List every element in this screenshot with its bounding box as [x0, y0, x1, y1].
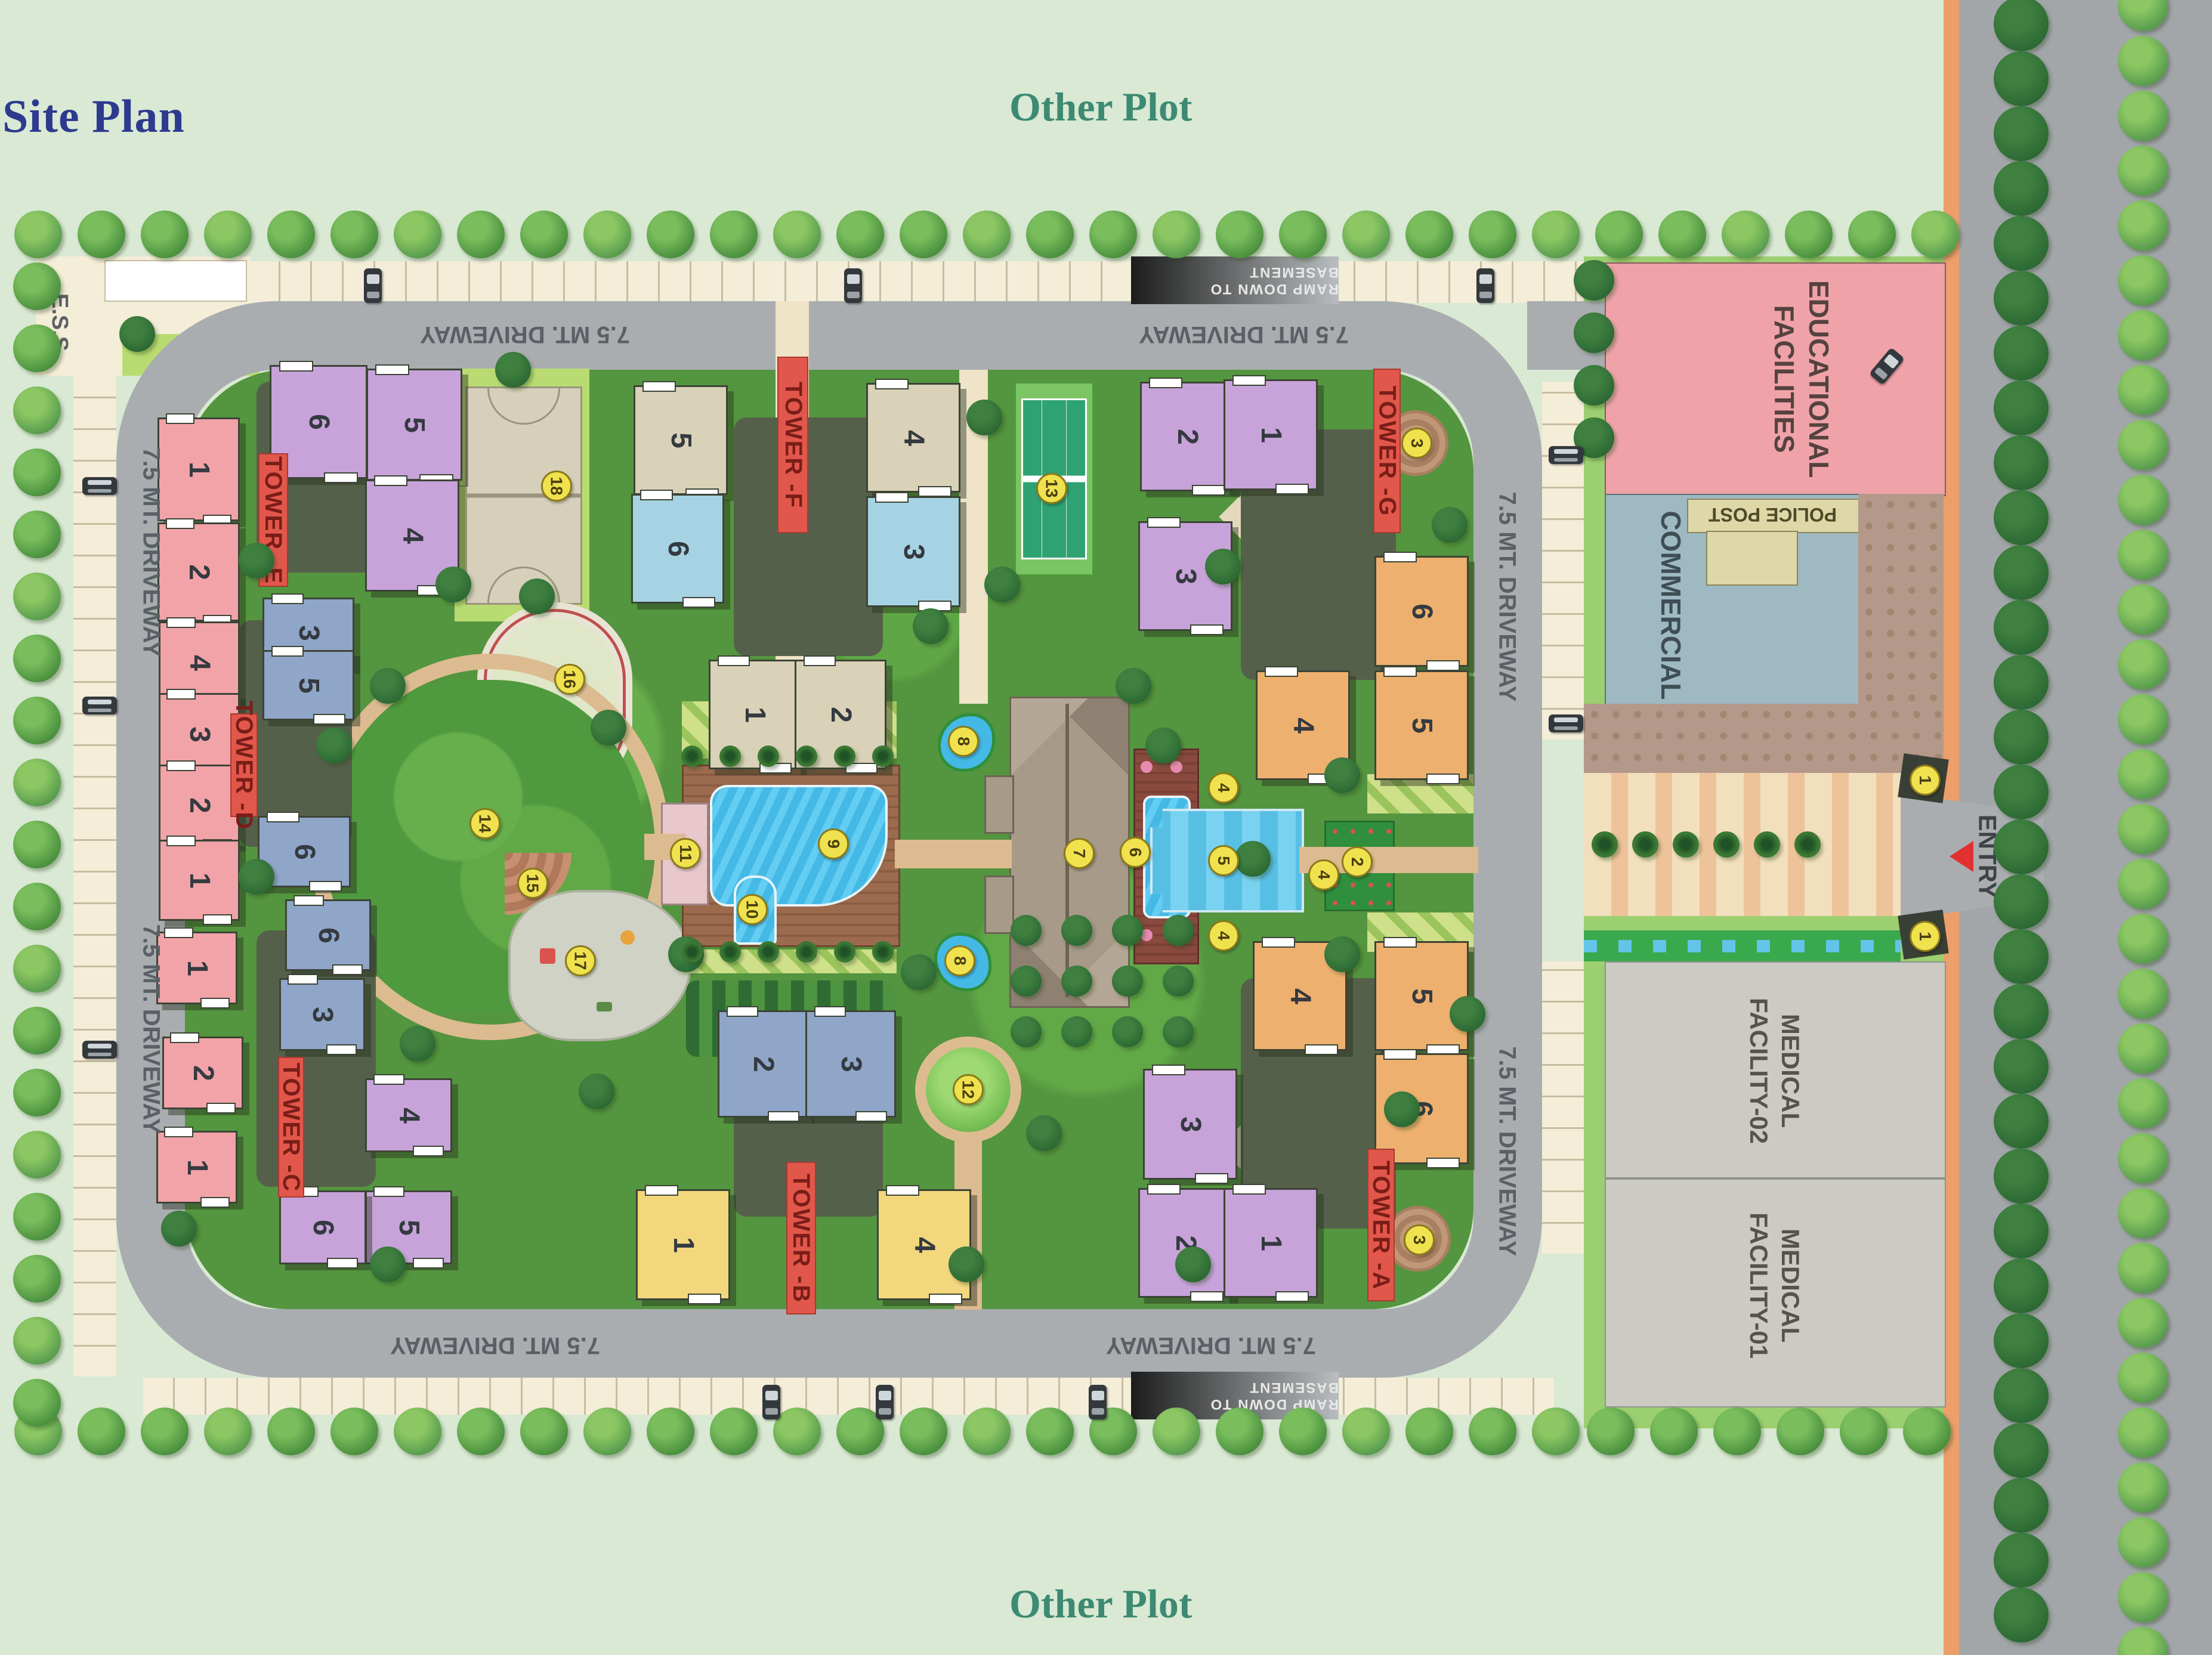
tree — [495, 352, 531, 388]
tree — [1405, 1407, 1453, 1455]
residential-block: 5 — [634, 385, 728, 495]
residential-block: 1 — [159, 840, 240, 921]
residential-block: 5 — [1374, 670, 1469, 780]
tree — [13, 324, 61, 372]
tree — [1061, 915, 1092, 946]
driveway-label: 7.5 MT. DRIVEWAY — [400, 1327, 591, 1363]
tree — [1469, 211, 1516, 258]
parked-car — [844, 268, 862, 303]
tree — [647, 1407, 694, 1455]
tree — [519, 579, 555, 614]
block-number: 4 — [1283, 988, 1316, 1004]
residential-block: 3 — [279, 978, 365, 1051]
block-number: 1 — [182, 462, 215, 478]
tree — [1994, 161, 2049, 216]
tree — [1994, 1423, 2049, 1478]
residential-block: 2 — [718, 1010, 808, 1118]
tree — [719, 745, 741, 767]
tree — [758, 745, 779, 767]
tree — [773, 211, 821, 258]
residential-block: 5 — [1374, 941, 1469, 1051]
block-number: 4 — [907, 1237, 940, 1253]
tree — [13, 1379, 61, 1427]
tree — [204, 211, 252, 258]
tree — [457, 1407, 505, 1455]
block-number: 2 — [186, 1065, 219, 1081]
tree — [141, 211, 189, 258]
tree — [710, 211, 758, 258]
block-number: 4 — [1286, 717, 1319, 734]
parked-car — [82, 1041, 117, 1059]
amenity-marker: 13 — [1036, 473, 1067, 504]
block-number: 6 — [661, 541, 694, 557]
tree — [13, 448, 61, 496]
tree — [1153, 1407, 1200, 1455]
tree — [836, 211, 884, 258]
tree — [1632, 831, 1658, 858]
tree — [1324, 757, 1360, 793]
tree — [1994, 874, 2049, 929]
amenity-marker-number: 13 — [1042, 479, 1061, 497]
residential-block: 1 — [157, 417, 240, 521]
tree — [2118, 530, 2168, 580]
tree — [1011, 915, 1042, 946]
tree — [1112, 966, 1143, 997]
block-number: 6 — [311, 927, 344, 943]
amenity-marker: 16 — [554, 664, 585, 695]
tree — [1145, 728, 1181, 763]
tree — [1994, 0, 2049, 51]
tree — [1026, 1115, 1062, 1151]
tree — [1994, 1533, 2049, 1588]
tree — [1994, 490, 2049, 545]
tower-name-label: TOWER -B — [788, 1173, 815, 1303]
tree — [2118, 914, 2168, 964]
tree — [13, 1255, 61, 1303]
tree — [14, 211, 62, 258]
amenity-marker: 8 — [944, 945, 975, 976]
tree — [758, 941, 779, 963]
amenity-marker-number: 10 — [743, 900, 762, 918]
block-number: 2 — [1170, 429, 1203, 445]
tree — [834, 941, 855, 963]
tree — [647, 211, 694, 258]
tree — [963, 1407, 1011, 1455]
parked-car — [1549, 446, 1583, 464]
tree — [1994, 271, 2049, 326]
tree — [710, 1407, 758, 1455]
block-number: 3 — [1173, 1116, 1206, 1133]
tree — [204, 1407, 252, 1455]
block-number: 1 — [666, 1237, 699, 1253]
tree — [1650, 1407, 1698, 1455]
amenity-marker-number: 3 — [1407, 438, 1426, 448]
tree — [1112, 915, 1143, 946]
amenity-marker-number: 18 — [547, 477, 566, 495]
block-number: 5 — [1405, 717, 1438, 734]
driveway-label: 7.5 MT. DRIVEWAY — [1411, 579, 1602, 614]
tree — [13, 386, 61, 434]
tree — [1994, 545, 2049, 600]
tree — [984, 567, 1020, 602]
block-number: 3 — [897, 544, 929, 560]
tree — [1994, 1039, 2049, 1094]
tree — [2118, 584, 2168, 635]
block-number: 3 — [183, 726, 215, 743]
block-number: 1 — [738, 707, 771, 723]
tree — [2118, 1462, 2168, 1512]
residential-block: 1 — [156, 1131, 237, 1204]
tree — [1532, 211, 1580, 258]
block-number: 6 — [302, 414, 335, 430]
tree — [2118, 804, 2168, 854]
block-number: 2 — [824, 707, 857, 723]
block-number: 5 — [392, 1220, 425, 1236]
tower-core — [734, 417, 883, 656]
tree — [872, 745, 894, 767]
tree — [583, 211, 631, 258]
residential-block: 5 — [262, 650, 354, 720]
amenity-marker: 18 — [541, 471, 572, 502]
residential-block: 5 — [366, 369, 462, 481]
tree — [1840, 1407, 1887, 1455]
tree — [1994, 435, 2049, 490]
driveway-label: 7.5 MT. DRIVEWAY — [1411, 1133, 1602, 1169]
amenity-marker: 4 — [1308, 859, 1339, 890]
tree — [2118, 1078, 2168, 1128]
tree — [796, 745, 817, 767]
tree — [267, 211, 315, 258]
parked-car — [1089, 1385, 1107, 1419]
amenity-marker: 1 — [1910, 921, 1941, 952]
tree — [1432, 507, 1468, 543]
tree — [2118, 91, 2168, 141]
tree — [1595, 211, 1643, 258]
tree — [13, 1007, 61, 1054]
tree — [1722, 211, 1769, 258]
tree — [1994, 1313, 2049, 1368]
tree — [1754, 831, 1780, 858]
tree — [1089, 211, 1137, 258]
tree — [400, 1026, 435, 1062]
amenity-marker-number: 4 — [1214, 783, 1233, 793]
tower-name-band: TOWER -F — [777, 357, 808, 533]
tree — [913, 608, 949, 644]
residential-block: 4 — [866, 383, 960, 493]
residential-block: 1 — [1224, 379, 1318, 490]
amenity-marker: 14 — [469, 808, 501, 839]
tree — [1011, 966, 1042, 997]
tree — [1011, 1016, 1042, 1047]
block-number: 3 — [1169, 568, 1201, 584]
tree — [1574, 365, 1614, 406]
tree — [1994, 765, 2049, 819]
tree — [1163, 1016, 1194, 1047]
site-plan-canvas: Site Plan Other Plot Other Plot E.S.S RA… — [0, 0, 2212, 1655]
tree — [13, 883, 61, 930]
tree — [394, 1407, 441, 1455]
tree — [1777, 1407, 1824, 1455]
tree — [13, 759, 61, 806]
tree — [330, 211, 378, 258]
residential-block: 4 — [877, 1189, 971, 1300]
tree — [2118, 1517, 2168, 1567]
tree — [13, 1131, 61, 1178]
tree — [1994, 381, 2049, 435]
tree — [1994, 1588, 2049, 1642]
amenity-marker-number: 9 — [824, 839, 843, 849]
tree — [78, 211, 125, 258]
amenity-marker-number: 11 — [676, 844, 695, 862]
tree — [1469, 1407, 1516, 1455]
tree — [1587, 1407, 1635, 1455]
tree — [2118, 365, 2168, 415]
tree — [1405, 211, 1453, 258]
parked-car — [364, 268, 382, 303]
residential-block: 4 — [365, 1078, 452, 1152]
block-number: 4 — [396, 528, 428, 544]
tree — [1903, 1407, 1951, 1455]
tree — [1658, 211, 1706, 258]
tower-name-label: TOWER -F — [780, 381, 807, 508]
tree — [13, 697, 61, 744]
tree — [2118, 1407, 2168, 1458]
tree — [1994, 600, 2049, 655]
amenity-marker-number: 6 — [1126, 847, 1145, 857]
tree — [1848, 211, 1896, 258]
tree — [370, 668, 406, 704]
amenity-marker-number: 15 — [523, 874, 542, 892]
tree — [2118, 639, 2168, 689]
amenity-marker-number: 8 — [950, 956, 969, 966]
residential-block: 3 — [805, 1010, 896, 1118]
residential-block: 1 — [636, 1189, 730, 1300]
amenity-marker-number: 4 — [1314, 870, 1333, 880]
tree — [966, 400, 1002, 435]
tree — [900, 211, 947, 258]
tower-name-label: TOWER -C — [278, 1062, 305, 1192]
tree — [1235, 841, 1271, 877]
block-number: 5 — [664, 432, 697, 448]
tree — [1216, 1407, 1263, 1455]
tree — [1713, 1407, 1761, 1455]
tower-name-label: TOWER -A — [1368, 1160, 1395, 1289]
tree — [2118, 1243, 2168, 1293]
amenity-marker-number: 5 — [1214, 856, 1233, 865]
amenity-marker-number: 7 — [1070, 849, 1089, 858]
residential-block: 6 — [631, 494, 724, 604]
amenity-marker-number: 17 — [571, 951, 590, 970]
block-number: 3 — [834, 1056, 867, 1072]
tree — [1994, 984, 2049, 1039]
tree — [1994, 1368, 2049, 1423]
tree — [1994, 1204, 2049, 1258]
tree — [719, 941, 741, 963]
tree — [2118, 1188, 2168, 1238]
block-number: 1 — [1254, 427, 1287, 443]
tree — [1994, 1094, 2049, 1149]
tree — [2118, 1023, 2168, 1074]
residential-block: 2 — [162, 1037, 243, 1109]
tree — [1794, 831, 1821, 858]
tree — [1673, 831, 1699, 858]
tree — [520, 211, 568, 258]
tree — [1153, 211, 1200, 258]
amenity-marker: 3 — [1401, 428, 1432, 459]
tower-name-band: TOWER -C — [278, 1057, 304, 1198]
tree — [591, 710, 626, 745]
tree — [1994, 1258, 2049, 1313]
amenity-marker-number: 1 — [1916, 932, 1935, 941]
amenity-marker-number: 12 — [959, 1080, 978, 1099]
parked-car — [762, 1385, 780, 1419]
tree — [2118, 475, 2168, 525]
amenity-marker: 5 — [1208, 845, 1239, 876]
tree — [1911, 211, 1959, 258]
tree — [13, 1069, 61, 1116]
block-number: 3 — [292, 625, 325, 641]
tree — [2118, 1627, 2168, 1655]
tree — [1994, 655, 2049, 710]
tower-name-band: TOWER -B — [786, 1162, 816, 1314]
tree — [681, 941, 703, 963]
residential-block: 2 — [1140, 382, 1234, 491]
amenity-marker-number: 8 — [954, 737, 973, 746]
amenity-marker: 8 — [948, 726, 979, 757]
amenity-marker: 10 — [737, 894, 768, 925]
amenity-marker: 11 — [670, 838, 701, 869]
amenity-marker: 4 — [1208, 772, 1239, 803]
block-number: 5 — [1405, 988, 1438, 1004]
driveway-label: 7.5 MT. DRIVEWAY — [1148, 316, 1339, 352]
tree — [1532, 1407, 1580, 1455]
tree — [2118, 36, 2168, 86]
tree — [13, 635, 61, 682]
residential-block: 1 — [156, 932, 237, 1004]
amenity-marker-number: 2 — [1348, 857, 1367, 867]
tree — [1994, 1149, 2049, 1204]
parked-car — [82, 697, 117, 714]
tree — [2118, 859, 2168, 909]
driveway-label: 7.5 MT. DRIVEWAY — [55, 534, 246, 570]
block-number: 2 — [183, 797, 215, 813]
parked-car — [82, 477, 117, 495]
tree — [1574, 260, 1614, 301]
tree — [2118, 0, 2168, 31]
amenity-marker-number: 16 — [560, 670, 579, 688]
tree — [13, 573, 61, 620]
tree — [901, 954, 937, 990]
tree — [2118, 1572, 2168, 1622]
residential-block: 1 — [1224, 1188, 1318, 1298]
tree — [316, 728, 352, 763]
tree — [1324, 936, 1360, 972]
tree — [1061, 1016, 1092, 1047]
block-number: 4 — [183, 655, 215, 671]
tree — [1342, 1407, 1390, 1455]
amenity-marker: 15 — [517, 868, 548, 899]
tree — [2118, 694, 2168, 744]
residential-block: 6 — [279, 1190, 366, 1264]
tree — [78, 1407, 125, 1455]
driveway-label: 7.5 MT. DRIVEWAY — [1116, 1327, 1306, 1363]
tree — [773, 1407, 821, 1455]
tree — [1116, 668, 1151, 704]
tree — [13, 945, 61, 992]
tree — [1163, 966, 1194, 997]
tree — [2118, 420, 2168, 470]
block-number: 1 — [1254, 1235, 1287, 1251]
block-number: 1 — [183, 873, 215, 889]
amenity-marker-number: 4 — [1214, 931, 1233, 941]
residential-block: 3 — [866, 496, 960, 607]
tree — [13, 1317, 61, 1365]
amenity-marker: 17 — [565, 945, 596, 976]
amenity-marker-number: 3 — [1410, 1235, 1429, 1245]
block-number: 2 — [746, 1056, 779, 1072]
residential-block: 2 — [159, 765, 240, 846]
tree — [13, 511, 61, 558]
tree — [1163, 915, 1194, 946]
tree — [1994, 929, 2049, 984]
tower-name-band: TOWER -G — [1373, 369, 1401, 533]
tree — [1216, 211, 1263, 258]
tree — [2118, 1353, 2168, 1403]
tree — [457, 211, 505, 258]
tree — [1994, 326, 2049, 381]
tree — [1574, 313, 1614, 353]
tree — [239, 859, 274, 895]
tree — [2118, 1133, 2168, 1183]
tree — [579, 1074, 614, 1109]
tree — [1279, 211, 1327, 258]
block-number: 4 — [392, 1108, 425, 1124]
block-number: 5 — [292, 678, 325, 694]
amenity-marker-number: 1 — [1916, 775, 1935, 785]
tree — [1026, 211, 1074, 258]
tree — [1061, 966, 1092, 997]
block-number: 1 — [180, 960, 213, 976]
tree — [796, 941, 817, 963]
tower-name-label: TOWER -G — [1374, 385, 1401, 516]
residential-block: 2 — [1138, 1188, 1232, 1298]
tree — [435, 567, 471, 602]
block-number: 5 — [398, 417, 431, 433]
tree — [2118, 749, 2168, 799]
parked-car — [1476, 268, 1494, 303]
amenity-marker: 12 — [953, 1074, 984, 1105]
amenity-marker: 4 — [1208, 920, 1239, 951]
tree — [963, 211, 1011, 258]
amenity-marker: 2 — [1342, 846, 1373, 877]
tree — [1592, 831, 1618, 858]
tree — [1994, 106, 2049, 161]
tree — [1994, 1478, 2049, 1533]
tree — [1342, 211, 1390, 258]
amenity-marker: 3 — [1404, 1224, 1435, 1255]
tree — [1205, 549, 1241, 584]
tree — [1175, 1246, 1211, 1282]
tree — [2118, 200, 2168, 250]
tree — [2118, 146, 2168, 196]
tree — [1713, 831, 1740, 858]
block-number: 3 — [305, 1007, 338, 1023]
tree — [239, 543, 274, 579]
tree — [2118, 310, 2168, 360]
tree — [1112, 1016, 1143, 1047]
tree — [681, 745, 703, 767]
tree — [949, 1246, 984, 1282]
